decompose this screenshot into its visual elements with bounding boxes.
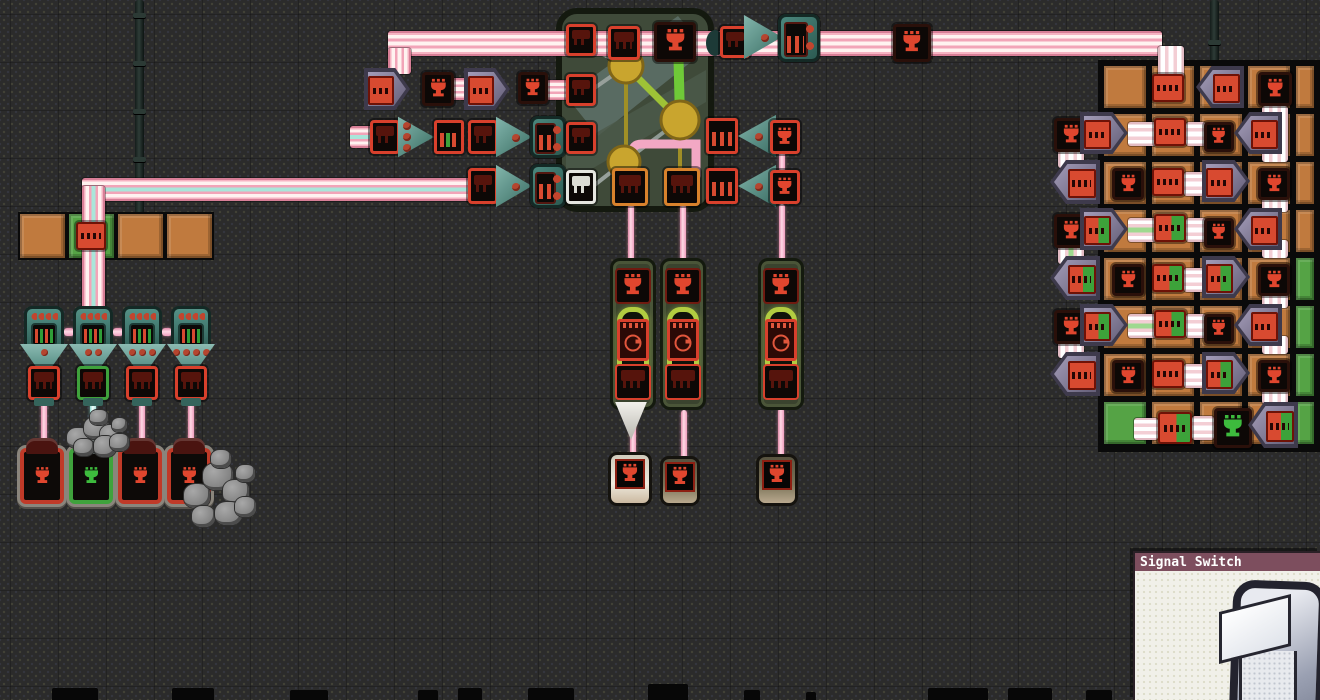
automation-port[interactable] [370, 120, 400, 154]
chute-marker [613, 402, 649, 440]
automation-port[interactable] [1204, 314, 1234, 344]
ribbon-port-display[interactable] [76, 222, 106, 250]
automation-ribbon-cable[interactable] [1128, 122, 1156, 146]
signal-switch-tooltip: Signal Switch [1133, 551, 1320, 700]
background-pipe [1210, 0, 1219, 62]
canister-port-screen [665, 462, 695, 492]
cutoff-background-text [458, 688, 482, 700]
socket-port-icon [34, 372, 53, 393]
overlay-machine-pod[interactable] [1196, 66, 1244, 108]
fork-port-icon [82, 463, 101, 490]
automation-wire[interactable] [779, 204, 785, 262]
ribbon-port-display[interactable] [1154, 214, 1186, 242]
automation-port[interactable] [1214, 408, 1252, 448]
funnel-stem [181, 398, 201, 406]
cutoff-background-text [648, 684, 688, 700]
ribbon-pin-display [1213, 74, 1240, 102]
fork-port-icon [1209, 127, 1228, 146]
automation-ribbon-cable[interactable] [1186, 314, 1206, 338]
floor-tile [1294, 256, 1316, 302]
ribbon-pin-display [1251, 312, 1278, 340]
floor-tile [1294, 304, 1316, 350]
automation-port[interactable] [566, 74, 596, 106]
ribbon-port-display[interactable] [1152, 168, 1184, 196]
fork-port-icon [1060, 124, 1082, 146]
socket-port-icon [474, 126, 492, 147]
fork-port-icon [661, 28, 690, 55]
ribbon-port-display[interactable] [1152, 360, 1184, 388]
smart-storage-port[interactable] [118, 448, 162, 504]
ribbon-pin-display [1084, 120, 1111, 148]
canister-port-screen [615, 459, 645, 489]
automation-port[interactable] [770, 120, 800, 154]
buffer-gate[interactable] [758, 258, 804, 410]
floor-tile [116, 212, 165, 260]
gate-output-port [665, 364, 701, 400]
automation-ribbon-cable[interactable] [82, 178, 472, 201]
socket-port-icon [376, 126, 394, 147]
automation-port[interactable] [1258, 264, 1290, 296]
fork-port-icon [1060, 220, 1082, 242]
socket-port-icon [181, 372, 200, 393]
socket-port-icon [671, 370, 695, 394]
fork-port-icon [1209, 319, 1228, 338]
ribbon-pin-display [368, 76, 394, 104]
floor-tile [1294, 352, 1316, 398]
automation-port[interactable] [175, 366, 207, 400]
ribbon-port[interactable] [706, 168, 738, 204]
automation-port[interactable] [422, 72, 454, 106]
ribbon-pin-display [1084, 216, 1111, 244]
overlay-machine-pod[interactable] [1234, 304, 1282, 346]
fork-port-icon [669, 466, 691, 488]
automation-port[interactable] [566, 24, 596, 56]
gate-input-port [665, 268, 701, 304]
ribbon-reader[interactable] [530, 116, 566, 158]
buffer-gate[interactable] [610, 258, 656, 410]
fork-port-icon [1264, 174, 1285, 195]
ribbon-port-display[interactable] [1152, 74, 1184, 102]
overlay-machine-pod[interactable] [1248, 402, 1298, 448]
ribbon-port-display[interactable] [1158, 412, 1192, 444]
automation-port[interactable] [566, 122, 596, 154]
fork-port-icon [1220, 414, 1246, 441]
automation-ribbon-cable[interactable] [1192, 416, 1214, 440]
automation-port[interactable] [518, 72, 548, 104]
cutoff-background-text [806, 692, 816, 700]
floor-tile [165, 212, 214, 260]
ribbon-port[interactable] [434, 120, 464, 154]
automation-ribbon-cable[interactable] [1186, 218, 1206, 242]
automation-port[interactable] [1112, 264, 1144, 296]
smart-storage-port[interactable] [20, 448, 64, 504]
socket-port-icon [572, 128, 590, 148]
automation-port[interactable] [566, 170, 596, 204]
canister-port-screen [762, 460, 792, 490]
socket-port-icon [671, 175, 693, 199]
fork-port-icon [1264, 78, 1286, 100]
automation-port[interactable] [1204, 122, 1234, 152]
cutoff-background-text [418, 690, 438, 700]
buffer-gate[interactable] [660, 258, 706, 410]
automation-ribbon-cable[interactable] [1186, 122, 1206, 146]
ribbon-reader[interactable] [778, 14, 820, 62]
signal-arrow-machine[interactable] [496, 114, 532, 160]
fork-port-icon [775, 126, 794, 148]
socket-port-icon [614, 32, 633, 53]
ribbon-pin-display [1068, 265, 1096, 295]
automation-ribbon-cable[interactable] [82, 186, 105, 314]
fork-port-icon [428, 78, 449, 100]
fork-port-icon [523, 78, 542, 99]
automation-port[interactable] [468, 120, 498, 154]
overlay-machine-pod[interactable] [1202, 352, 1250, 394]
automation-ribbon-cable[interactable] [1184, 172, 1204, 196]
automation-wire[interactable] [628, 204, 634, 262]
timer-icon [765, 319, 797, 361]
tooltip-body [1133, 571, 1320, 700]
gate-output-port [615, 364, 651, 400]
socket-port-icon [621, 370, 645, 394]
fork-port-icon [1264, 270, 1285, 291]
floor-tile [1294, 112, 1316, 158]
cutoff-background-text [744, 690, 760, 700]
automation-wire[interactable] [680, 204, 686, 262]
automation-overlay-viewport: Signal Switch [0, 0, 1320, 700]
cutoff-background-text [1008, 688, 1052, 700]
canister-port[interactable] [660, 456, 700, 506]
fork-port-icon [1209, 223, 1228, 242]
fork-port-icon [899, 30, 925, 56]
ribbon-port-display[interactable] [1154, 310, 1186, 338]
socket-port-icon [474, 175, 492, 198]
socket-port-icon [726, 32, 744, 52]
overlay-machine-pod[interactable] [1202, 160, 1250, 202]
fork-port-icon [1118, 270, 1139, 291]
funnel-stem [132, 398, 152, 406]
automation-port[interactable] [1258, 72, 1292, 106]
overlay-machine-pod[interactable] [1234, 208, 1282, 250]
automation-port[interactable] [612, 168, 648, 206]
timer-icon [617, 319, 649, 361]
funnel-stem [83, 398, 103, 406]
gate-output-port [763, 364, 799, 400]
ribbon-pin-display [1068, 169, 1096, 199]
tooltip-title: Signal Switch [1140, 555, 1242, 570]
overlay-machine-pod[interactable] [364, 68, 410, 110]
overlay-machine-pod[interactable] [464, 68, 510, 110]
automation-port[interactable] [664, 168, 700, 206]
floor-tile [1294, 64, 1316, 110]
automation-port[interactable] [893, 24, 931, 62]
overlay-machine-pod[interactable] [1234, 112, 1282, 154]
ribbon-pin-display [1266, 411, 1294, 442]
cutoff-background-text [928, 688, 988, 700]
automation-port[interactable] [77, 366, 109, 400]
signal-arrow-machine[interactable] [496, 162, 532, 210]
cutoff-background-text [528, 688, 574, 700]
automation-ribbon-cable[interactable] [1184, 268, 1204, 292]
automation-port[interactable] [126, 366, 158, 400]
automation-port[interactable] [770, 170, 800, 204]
overlay-machine-pod[interactable] [1080, 304, 1128, 346]
automation-ribbon-cable[interactable] [1134, 418, 1158, 440]
fork-port-icon [766, 464, 788, 486]
timer-icon [667, 319, 699, 361]
socket-port-icon [572, 80, 590, 100]
debris-pile [180, 450, 258, 536]
socket-port-icon [83, 372, 102, 393]
fork-port-icon [1118, 174, 1139, 195]
automation-port[interactable] [1112, 360, 1144, 392]
ribbon-pin-display [1068, 361, 1096, 391]
floor-tile [1294, 160, 1316, 206]
fork-port-icon [620, 273, 646, 299]
automation-port[interactable] [608, 26, 640, 60]
canister-port[interactable] [756, 454, 798, 506]
ribbon-pin-display [1251, 216, 1278, 244]
socket-port-icon [572, 30, 590, 50]
ribbon-pin-display [1206, 168, 1233, 196]
automation-port[interactable] [1112, 168, 1144, 200]
overlay-machine-pod[interactable] [1080, 208, 1128, 250]
fork-port-icon [131, 463, 150, 490]
ribbon-port[interactable] [706, 118, 738, 154]
overlay-machine-pod[interactable] [1050, 160, 1100, 204]
floor-tile [1102, 64, 1148, 110]
canister-port[interactable] [608, 452, 652, 506]
automation-port[interactable] [468, 168, 498, 204]
cutoff-background-text [290, 690, 328, 700]
fork-port-icon [768, 273, 794, 299]
floor-tile [18, 212, 67, 260]
ribbon-reader[interactable] [530, 164, 566, 208]
ribbon-port-display[interactable] [1154, 118, 1186, 146]
signal-arrow-machine[interactable] [398, 114, 434, 160]
automation-port[interactable] [654, 22, 696, 62]
fork-port-icon [1118, 366, 1139, 387]
overlay-machine-pod[interactable] [1202, 256, 1250, 298]
automation-port[interactable] [1258, 360, 1290, 392]
automation-port[interactable] [28, 366, 60, 400]
automation-ribbon-cable[interactable] [1128, 218, 1156, 242]
floor-tile [1294, 208, 1316, 254]
fork-port-icon [1060, 316, 1082, 338]
gate-input-port [763, 268, 799, 304]
debris-pile [64, 410, 130, 454]
cutoff-background-text [1086, 690, 1112, 700]
socket-port-icon [572, 176, 590, 197]
cutoff-background-text [172, 688, 214, 700]
overlay-machine-pod[interactable] [1050, 352, 1100, 396]
socket-port-icon [132, 372, 151, 393]
automation-wire[interactable] [778, 408, 784, 458]
overlay-machine-pod[interactable] [1050, 256, 1100, 300]
cutoff-background-text [52, 688, 98, 700]
fork-port-icon [1264, 366, 1285, 387]
ribbon-pin-display [468, 76, 494, 104]
ribbon-pin-display [1084, 312, 1111, 340]
socket-port-icon [619, 175, 641, 199]
gate-input-port [615, 268, 651, 304]
signal-switch-image-base [1239, 651, 1297, 700]
socket-port-icon [769, 370, 793, 394]
ribbon-pin-display [1206, 360, 1233, 388]
automation-ribbon-cable[interactable] [1184, 364, 1204, 388]
tooltip-header: Signal Switch [1133, 551, 1320, 573]
ribbon-pin-display [1251, 120, 1278, 148]
automation-port[interactable] [1258, 168, 1290, 200]
automation-ribbon-cable[interactable] [1128, 314, 1156, 338]
automation-port[interactable] [1204, 218, 1234, 248]
funnel-stem [34, 398, 54, 406]
ribbon-port-display[interactable] [1152, 264, 1184, 292]
fork-port-icon [670, 273, 696, 299]
fork-port-icon [619, 463, 641, 485]
overlay-machine-pod[interactable] [1080, 112, 1128, 154]
automation-wire[interactable] [681, 410, 687, 460]
fork-port-icon [775, 176, 794, 198]
fork-port-icon [33, 463, 52, 490]
ribbon-pin-display [1206, 264, 1233, 292]
